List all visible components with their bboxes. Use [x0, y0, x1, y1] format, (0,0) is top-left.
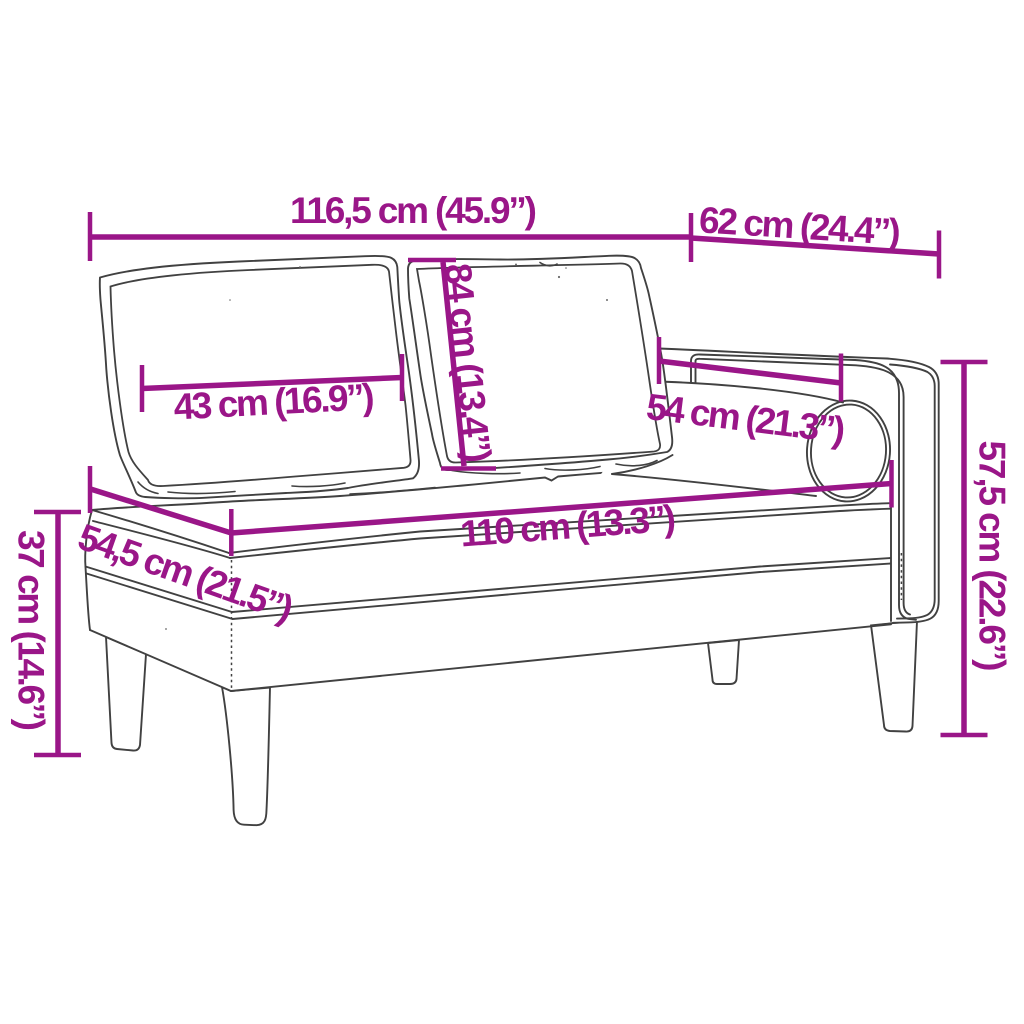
svg-text:37 cm (14.6”): 37 cm (14.6”): [11, 530, 52, 731]
svg-text:57,5 cm (22.6”): 57,5 cm (22.6”): [972, 441, 1013, 672]
svg-text:116,5 cm (45.9”): 116,5 cm (45.9”): [290, 190, 537, 231]
